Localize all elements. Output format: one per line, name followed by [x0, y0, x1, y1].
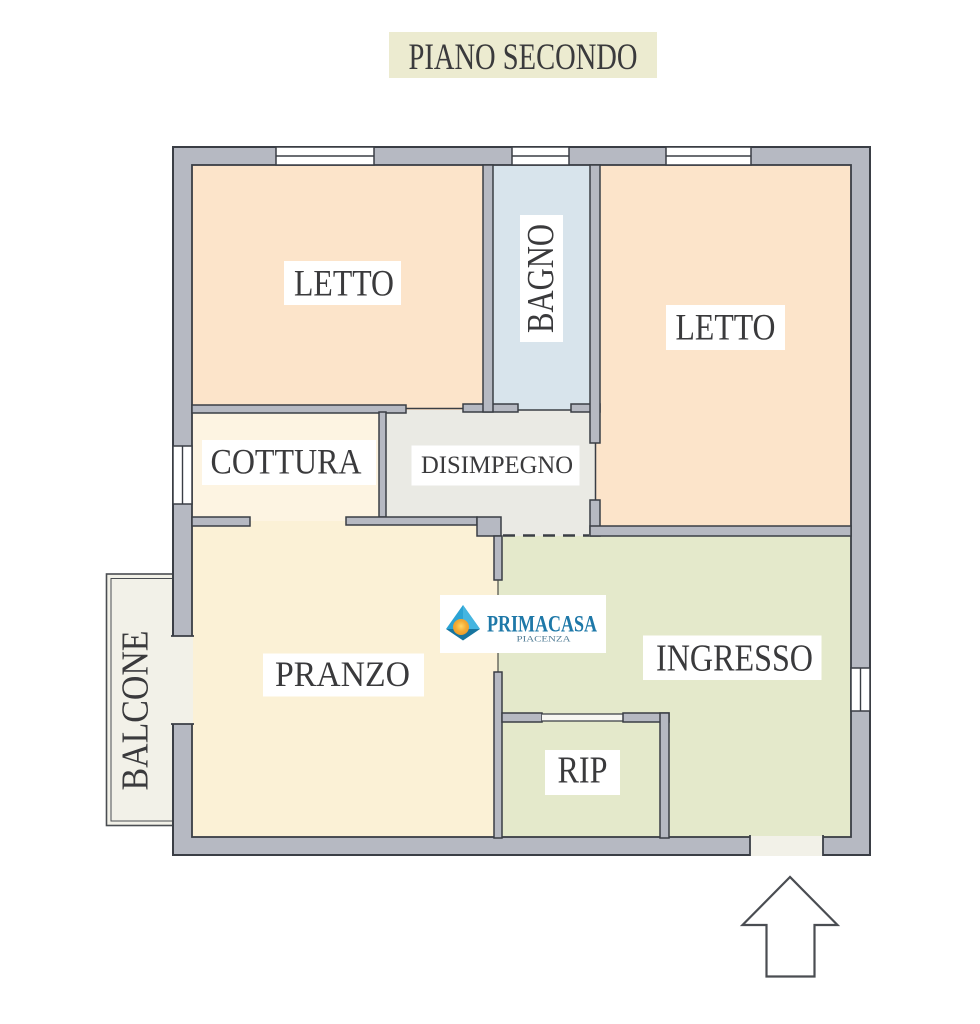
svg-text:DISIMPEGNO: DISIMPEGNO — [421, 450, 573, 479]
svg-text:PIANO SECONDO: PIANO SECONDO — [409, 37, 638, 78]
svg-text:RIP: RIP — [558, 750, 608, 792]
svg-text:LETTO: LETTO — [294, 264, 394, 305]
svg-text:LETTO: LETTO — [676, 308, 776, 349]
svg-text:COTTURA: COTTURA — [211, 442, 362, 482]
svg-text:INGRESSO: INGRESSO — [656, 638, 813, 680]
svg-text:PIACENZA: PIACENZA — [517, 635, 571, 644]
svg-text:BALCONE: BALCONE — [115, 631, 157, 791]
svg-text:BAGNO: BAGNO — [520, 224, 562, 333]
svg-text:PRANZO: PRANZO — [275, 654, 410, 694]
